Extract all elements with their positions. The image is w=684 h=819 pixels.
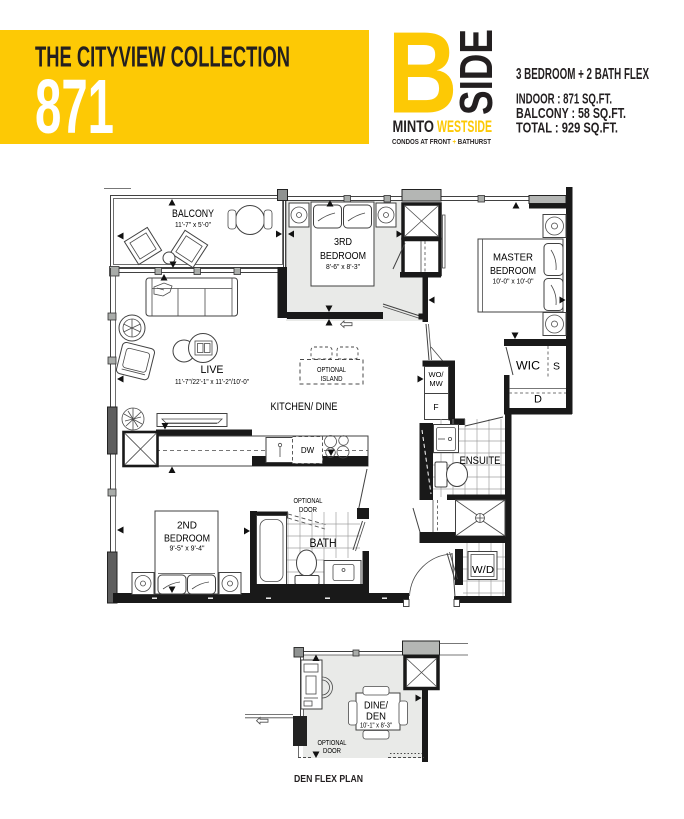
svg-text:MW: MW [429,379,443,388]
svg-text:BEDROOM: BEDROOM [164,533,210,545]
svg-text:11'-7" x 5'-0": 11'-7" x 5'-0" [175,222,211,229]
svg-text:DOOR: DOOR [323,746,341,755]
svg-text:BEDROOM: BEDROOM [490,265,536,277]
svg-text:BATH: BATH [310,536,337,550]
svg-text:BALCONY: BALCONY [172,208,215,220]
svg-text:10'-1" x 8'-3": 10'-1" x 8'-3" [360,723,392,730]
svg-text:WIC: WIC [516,359,540,373]
svg-text:D: D [534,394,542,406]
svg-text:DOOR: DOOR [299,505,317,514]
svg-text:DINE/: DINE/ [364,701,388,712]
svg-text:OPTIONAL: OPTIONAL [294,496,323,505]
svg-text:BEDROOM: BEDROOM [320,250,366,262]
svg-text:2ND: 2ND [177,520,197,532]
svg-text:10'-0" x 10'-0": 10'-0" x 10'-0" [493,279,534,286]
svg-text:CONDOS AT FRONT + BATHURST: CONDOS AT FRONT + BATHURST [392,139,492,146]
svg-text:11'-7"/22'-1" x 11'-2"/10'-0": 11'-7"/22'-1" x 11'-2"/10'-0" [175,379,249,386]
svg-text:3RD: 3RD [334,236,352,248]
svg-text:DEN FLEX PLAN: DEN FLEX PLAN [294,774,363,785]
svg-text:ENSUITE: ENSUITE [460,455,501,467]
svg-text:8'-6" x 8'-3": 8'-6" x 8'-3" [326,264,360,271]
svg-text:MINTO: MINTO [393,118,435,136]
svg-text:LIVE: LIVE [201,364,224,376]
svg-text:DW: DW [301,446,315,455]
svg-text:W/D: W/D [472,565,494,576]
svg-text:F: F [433,402,438,412]
svg-text:SIDE: SIDE [450,29,502,115]
svg-text:TOTAL : 929 SQ.FT.: TOTAL : 929 SQ.FT. [516,120,618,137]
svg-text:S: S [553,361,560,373]
svg-text:OPTIONAL: OPTIONAL [317,365,346,374]
svg-text:KITCHEN/ DINE: KITCHEN/ DINE [271,401,338,413]
svg-text:DEN: DEN [366,712,386,723]
svg-text:MASTER: MASTER [493,252,533,264]
svg-text:9'-5" x 9'-4": 9'-5" x 9'-4" [170,546,205,553]
svg-text:WESTSIDE: WESTSIDE [437,118,492,136]
svg-text:WO/: WO/ [429,370,445,379]
svg-text:ISLAND: ISLAND [321,374,343,383]
svg-text:871: 871 [35,64,114,150]
svg-text:3 BEDROOM + 2 BATH FLEX: 3 BEDROOM + 2 BATH FLEX [516,66,649,83]
